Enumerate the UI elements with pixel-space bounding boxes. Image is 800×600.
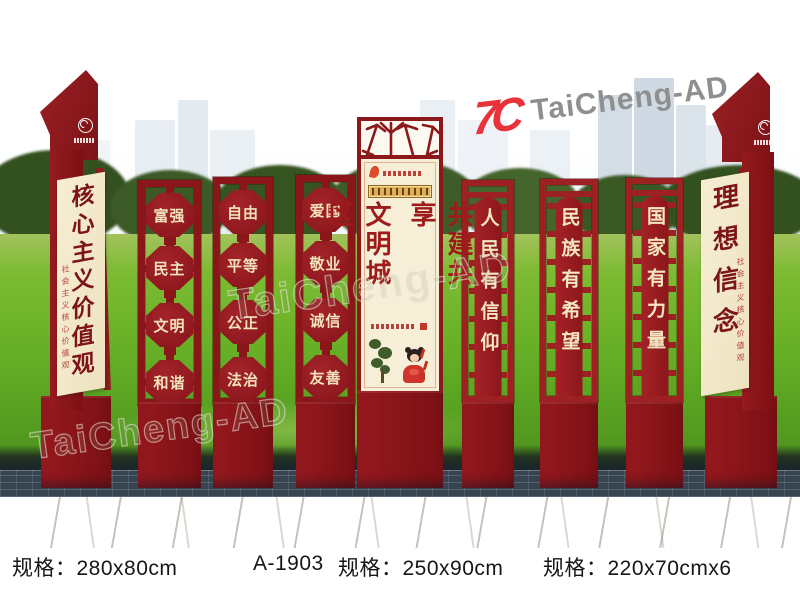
medallion: 平等 — [219, 243, 267, 287]
tiny-caption-text — [383, 171, 421, 176]
plant-illustration — [369, 339, 397, 383]
center-slogan-right-column: 共建共享 — [404, 201, 478, 315]
slogan-panel-3: 国家有力量 — [626, 178, 683, 402]
center-panel-logo-row — [370, 165, 430, 179]
spec-label-2: 规格：250x90cm — [338, 552, 503, 582]
medallion: 文明 — [146, 303, 194, 347]
right-pillar-band: 理想信念 社会主义核心价值观 — [701, 172, 749, 396]
value-word: 平等 — [227, 255, 259, 276]
red-seal-mark — [420, 323, 427, 330]
slogan-panel-2: 民族有希望 — [540, 179, 598, 402]
medallion: 自由 — [219, 190, 267, 234]
brand-mark-7c: 7C — [472, 90, 519, 142]
scene: 核心主义价值观 社会主义核心价值观 富强 民主 文明 和谐 自由 平等 公正 法 — [0, 0, 800, 600]
medallion: 公正 — [219, 300, 267, 344]
value-panel-2-base — [213, 402, 273, 488]
value-word: 法治 — [227, 369, 259, 390]
value-word: 友善 — [309, 367, 341, 388]
medallion: 民主 — [146, 246, 194, 290]
center-panel-slogan: 文明城区 共建共享 — [365, 201, 435, 315]
side-lattice — [581, 203, 591, 396]
slogan-panel-3-base — [626, 402, 683, 488]
emblem-swirl-icon — [78, 118, 93, 133]
illustration — [367, 337, 433, 385]
right-pillar-seal-text: 社会主义核心价值观 — [735, 256, 746, 378]
slogan-band: 民族有希望 — [556, 197, 583, 396]
fine-print-line — [371, 324, 415, 329]
value-word: 和谐 — [153, 372, 185, 393]
left-pillar-band: 核心主义价值观 社会主义核心价值观 — [57, 172, 105, 396]
spec-model: A-1903 — [253, 552, 324, 576]
value-word: 民主 — [153, 258, 185, 279]
slogan-text: 国家有力量 — [641, 206, 668, 396]
slogan-band: 人民有信仰 — [475, 198, 502, 396]
slogan-text: 民族有希望 — [556, 207, 583, 396]
value-panel-1-base — [138, 402, 201, 488]
pavement — [0, 497, 800, 548]
center-slogan-left-column: 文明城区 — [322, 201, 396, 315]
medallion: 和谐 — [146, 360, 194, 404]
spec-label-1: 规格：280x80cm — [12, 552, 177, 582]
slogan-text: 人民有信仰 — [475, 208, 502, 396]
medallion: 法治 — [219, 357, 267, 401]
center-panel-base — [357, 391, 443, 488]
center-panel-header — [357, 117, 443, 159]
value-word: 文明 — [153, 315, 185, 336]
left-pillar-seal-text: 社会主义核心价值观 — [60, 264, 71, 386]
medallion: 友善 — [302, 355, 350, 399]
emblem-caption — [754, 140, 774, 145]
calligraphy-marks — [417, 349, 431, 379]
slogan-band: 国家有力量 — [641, 196, 668, 396]
flame-logo-icon — [369, 165, 380, 179]
emblem-caption — [74, 138, 94, 143]
value-word: 公正 — [227, 312, 259, 333]
branch-lattice-art — [361, 121, 439, 155]
value-panel-3-base — [296, 402, 355, 488]
slogan-panel-1-base — [462, 402, 514, 488]
slogan-panel-2-base — [540, 402, 598, 488]
gold-ornament-band — [368, 185, 432, 198]
center-panel-body: 文明城区 共建共享 — [357, 159, 443, 391]
medallion: 富强 — [146, 193, 194, 237]
value-word: 富强 — [153, 205, 185, 226]
emblem-swirl-icon — [758, 120, 773, 135]
value-panel-2: 自由 平等 公正 法治 — [213, 177, 273, 405]
value-word: 自由 — [227, 202, 259, 223]
spec-label-3: 规格：220x70cmx6 — [543, 552, 732, 582]
value-panel-1: 富强 民主 文明 和谐 — [138, 180, 201, 406]
